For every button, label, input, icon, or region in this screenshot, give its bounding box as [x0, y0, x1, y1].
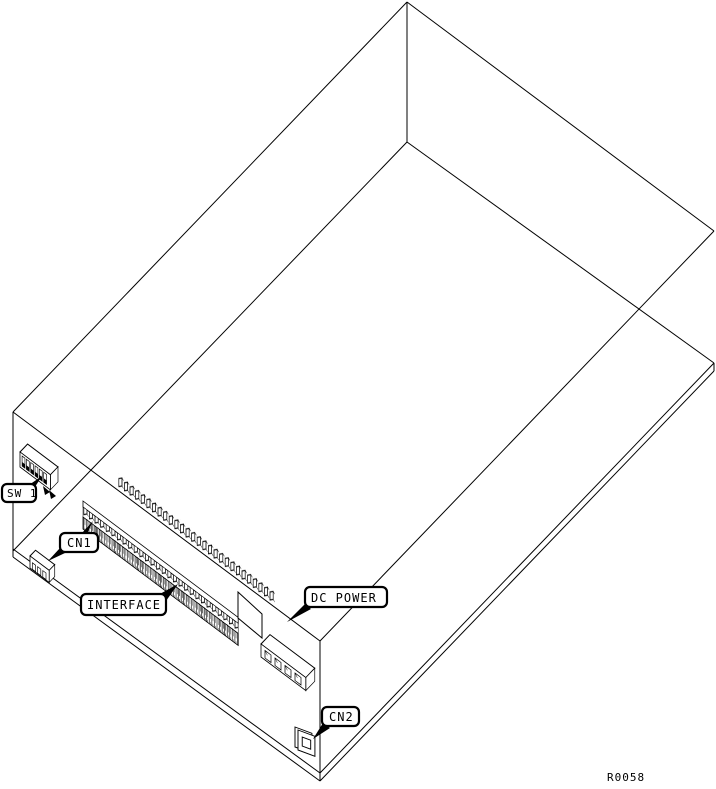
- board-diagram: SW 1 CN1 INTERFACE DC POWER CN2 R0058: [0, 0, 716, 789]
- connector-cn1: [30, 550, 55, 582]
- label-sw1: SW 1: [2, 484, 38, 502]
- enclosure-wireframe: [13, 2, 714, 781]
- drawing-ref-number: R0058: [607, 771, 645, 784]
- label-cn1-text: CN1: [67, 536, 92, 550]
- label-interface: INTERFACE: [81, 594, 166, 615]
- connector-cn2: [295, 727, 315, 756]
- label-cn2-text: CN2: [329, 710, 354, 724]
- interface-pin-row: [118, 473, 275, 605]
- label-cn1: CN1: [60, 533, 98, 552]
- interface-connector-end-cap: [238, 592, 262, 638]
- label-sw1-text: SW 1: [7, 487, 38, 500]
- label-dc-power: DC POWER: [305, 587, 387, 607]
- dc-power-connector: [261, 635, 315, 691]
- label-dc-power-text: DC POWER: [311, 591, 377, 605]
- label-interface-text: INTERFACE: [87, 598, 161, 612]
- label-cn2: CN2: [322, 707, 359, 726]
